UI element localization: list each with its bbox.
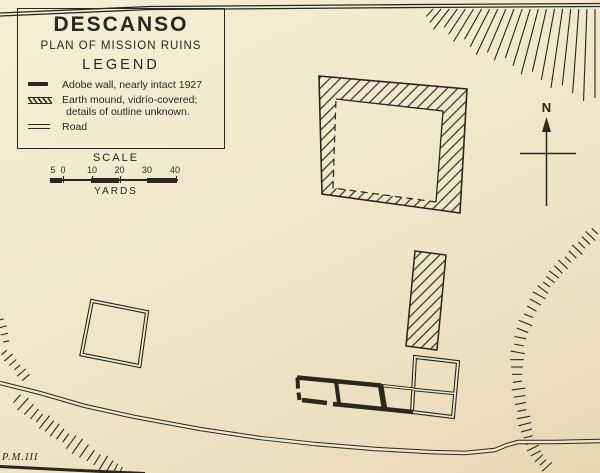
scale-bar-segment: [147, 178, 176, 183]
earth-mound-rectangle: [406, 251, 446, 350]
legend-item-adobe-wall: Adobe wall, nearly intact 1927: [28, 79, 224, 91]
scale-tick-label: 10: [87, 165, 97, 175]
legend: Adobe wall, nearly intact 1927 Earth mou…: [18, 79, 224, 133]
surveyor-mark: P.M.III: [2, 452, 39, 463]
scale-bar-tick: [120, 176, 121, 183]
road-symbol-icon: [28, 124, 50, 129]
legend-heading: LEGEND: [18, 57, 224, 73]
hillside-hatching-right: [510, 228, 598, 471]
map-canvas: DESCANSO PLAN OF MISSION RUINS LEGEND Ad…: [0, 0, 600, 473]
scale-tick-label: 30: [142, 165, 152, 175]
scale-tick-label: 5: [50, 165, 55, 175]
map-subtitle: PLAN OF MISSION RUINS: [18, 40, 224, 52]
scale-unit: YARDS: [94, 186, 138, 197]
scale-bar-tick: [176, 176, 177, 183]
scale-bar-tick: [63, 176, 64, 183]
legend-item-earth-mound: Earth mound, vidrío-covered; details of …: [28, 94, 224, 118]
north-label: N: [533, 100, 561, 115]
title-legend-box: DESCANSO PLAN OF MISSION RUINS LEGEND Ad…: [17, 8, 225, 149]
adobe-wall-symbol-icon: [28, 82, 48, 86]
scale-tick-label: 40: [170, 165, 180, 175]
scale-heading: SCALE: [93, 152, 139, 164]
map-title: DESCANSO: [18, 13, 224, 37]
hillside-hatching-left: [0, 319, 122, 473]
scale-bar-segment: [91, 178, 119, 183]
north-arrowhead-icon: [542, 117, 551, 132]
scale-tick-label: 20: [114, 165, 124, 175]
scale-bar-segment: [50, 178, 62, 183]
scale-tick-label: 0: [60, 165, 65, 175]
legend-item-label: Road: [58, 121, 224, 133]
legend-item-road: Road: [28, 121, 224, 133]
legend-item-label: Earth mound, vidrío-covered; details of …: [58, 94, 224, 118]
earth-mound-quadrangle: [319, 76, 467, 213]
west-structure: [82, 301, 148, 366]
adobe-wall-complex: [297, 357, 458, 417]
scale-bar-tick: [92, 176, 93, 183]
map-bottom-border: [0, 467, 145, 473]
scale-bar: SCALE 5 0 10 20 30 40 YARDS: [48, 152, 184, 200]
legend-item-label: Adobe wall, nearly intact 1927: [58, 79, 224, 91]
north-arrow: [520, 117, 576, 206]
earth-mound-symbol-icon: [28, 97, 52, 104]
